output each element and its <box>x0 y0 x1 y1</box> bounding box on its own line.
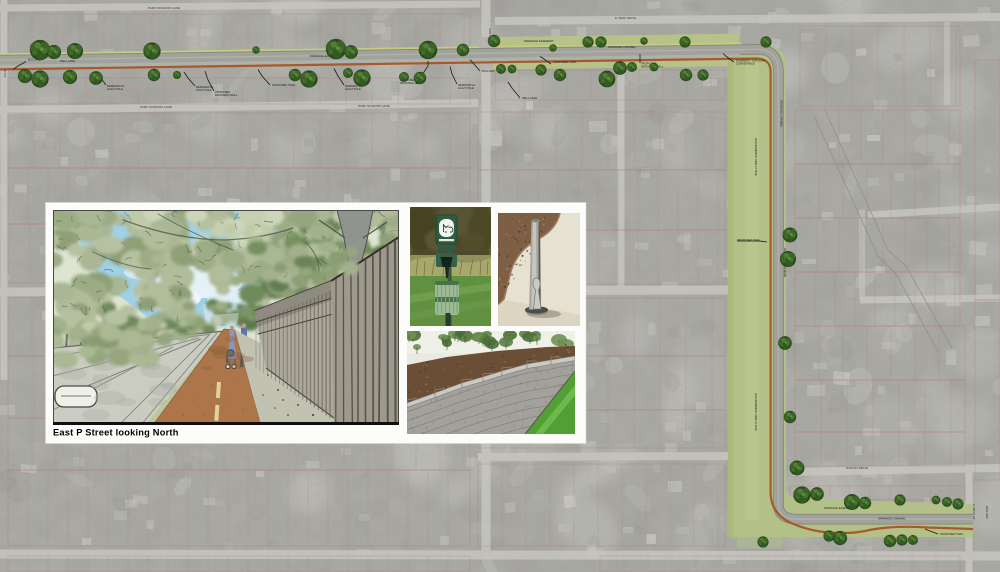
svg-text:PARK SHADOW LANE: PARK SHADOW LANE <box>148 6 180 10</box>
svg-text:BOLLARD: BOLLARD <box>482 69 495 73</box>
svg-text:BOLLARD: BOLLARD <box>985 506 989 519</box>
svg-text:WELL LANE: WELL LANE <box>522 96 537 100</box>
svg-text:DRAINAGE CHANNEL: DRAINAGE CHANNEL <box>608 45 636 49</box>
svg-text:(GOVERNMENT UNPLATTED): (GOVERNMENT UNPLATTED) <box>754 138 758 176</box>
svg-text:E 33RD DRIVE: E 33RD DRIVE <box>615 16 636 20</box>
svg-text:DRAINAGE CHANNEL: DRAINAGE CHANNEL <box>878 517 906 521</box>
svg-text:RESIDENTIALLIGHT POLE: RESIDENTIALLIGHT POLE <box>107 84 125 91</box>
svg-text:RESIDENTIALLIGHT POLE: RESIDENTIALLIGHT POLE <box>458 83 476 90</box>
svg-text:(GOVERNMENT UNPLATTED): (GOVERNMENT UNPLATTED) <box>754 393 758 431</box>
svg-text:PROPOSED TRAIL: PROPOSED TRAIL <box>553 60 577 64</box>
svg-text:NAVAJO DRIVE: NAVAJO DRIVE <box>846 466 868 470</box>
svg-text:PARK SHADOW LANE: PARK SHADOW LANE <box>140 105 172 109</box>
svg-text:East P Street looking North: East P Street looking North <box>53 428 179 438</box>
svg-text:DRAINAGE EASEMENT: DRAINAGE EASEMENT <box>524 39 554 43</box>
svg-text:PROPOSED TRAIL: PROPOSED TRAIL <box>272 83 296 87</box>
svg-text:WELL LANE: WELL LANE <box>60 59 75 63</box>
svg-text:DRAINAGE CHANNEL: DRAINAGE CHANNEL <box>780 100 784 128</box>
svg-text:PARK SHADOW LANE: PARK SHADOW LANE <box>358 104 390 108</box>
svg-text:PROPOSED TRAIL: PROPOSED TRAIL <box>940 532 964 536</box>
